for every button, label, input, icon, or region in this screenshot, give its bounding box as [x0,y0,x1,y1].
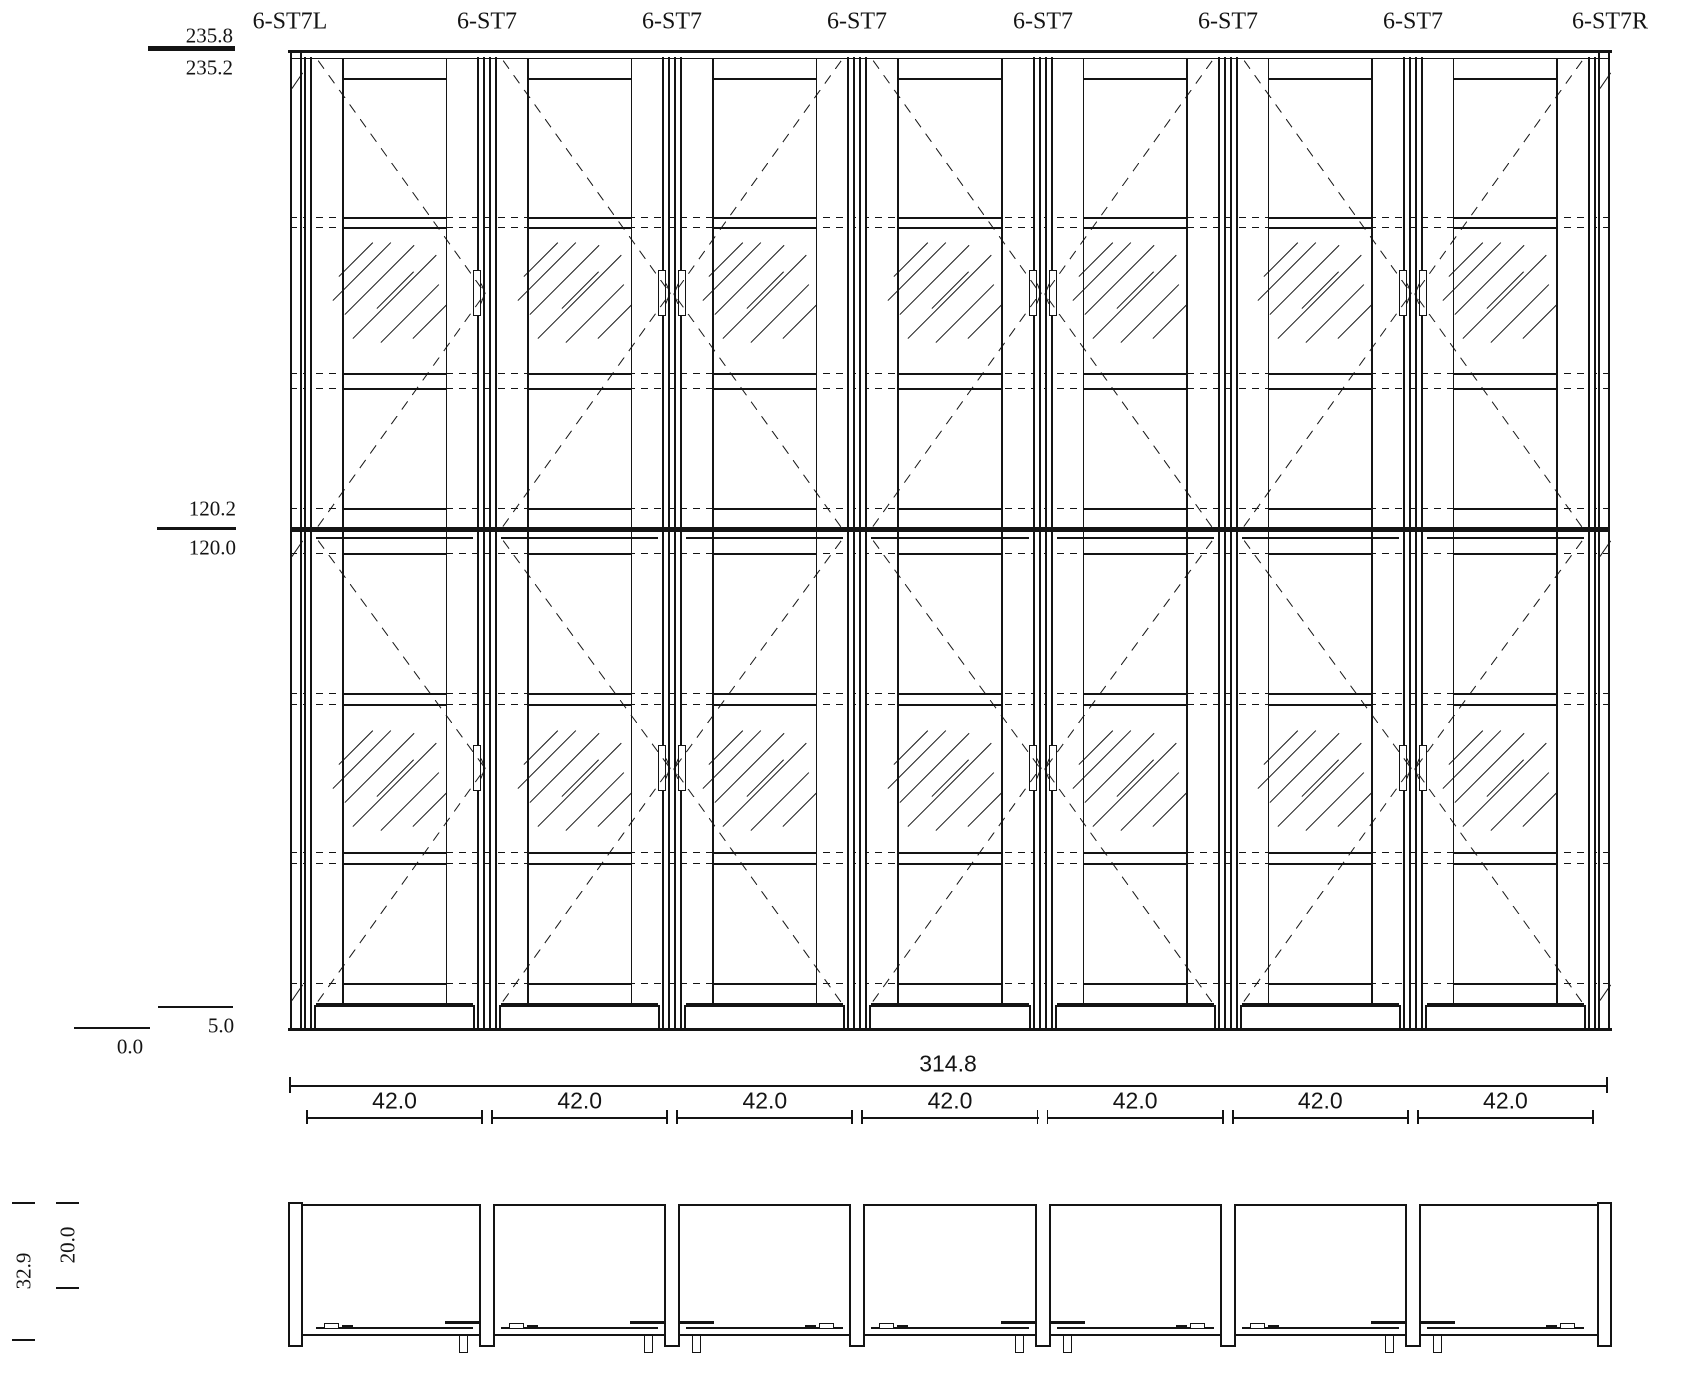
top-rail-line [342,78,447,80]
plinth [314,1005,475,1029]
bay-width-dimension: 42.0 [1113,1088,1158,1115]
dimension-line-bay [491,1117,668,1119]
door-top-edge [501,537,658,539]
shelf-line [1268,227,1373,229]
plan-end-cap-left [288,1202,303,1347]
plan-handle-bar [1371,1321,1407,1324]
shelf-line [1268,704,1373,706]
shelf-line [527,227,632,229]
dimension-line-bay [676,1117,853,1119]
glass-hatch-stroke [597,792,632,827]
dimension-tick [1417,1110,1419,1124]
shelf-line [1083,983,1188,985]
glass-hatch-stroke [565,772,624,831]
dimension-line-bay [1232,1117,1409,1119]
elevation-top-edge [288,50,1612,53]
shelf-line [712,852,817,854]
shelf-line [1453,704,1558,706]
plan-handle-tab [1433,1336,1442,1353]
plan-door-line [501,1327,658,1329]
door-top-edge [871,537,1028,539]
top-rail-line [1268,78,1373,80]
dimension-tick [676,1110,678,1124]
shelf-line [1268,852,1373,854]
plan-door-line [871,1327,1028,1329]
bay-width-dimension: 42.0 [557,1088,602,1115]
level-label-plinth: 5.0 [208,1014,234,1039]
depth-tick [12,1202,35,1204]
dimension-tick [1606,1077,1608,1093]
dimension-tick [306,1110,308,1124]
shelf-line [1453,863,1558,865]
glass-hatch-stroke [968,304,1003,339]
plan-handle-bar [1001,1321,1037,1324]
shelf-line [527,863,632,865]
unit-label: 6-ST7R [1572,9,1648,36]
stile-right [1588,57,1596,1029]
shelf-line [1268,373,1373,375]
glass-hatch-stroke [380,772,439,831]
hinge-symbol-dash [897,1325,908,1327]
level-mark-235 [148,46,235,51]
shelf-line [897,553,1002,555]
plan-divider [1035,1204,1051,1347]
body-depth-dimension: 20.0 [56,1227,81,1264]
shelf-line [342,227,447,229]
glass-hatch-stroke [412,304,447,339]
hinge-symbol [324,1323,339,1329]
dimension-tick [1222,1110,1224,1124]
dimension-tick [1592,1110,1594,1124]
dimension-tick [851,1110,853,1124]
depth-tick [12,1339,35,1341]
level-mark-0 [74,1027,150,1029]
shelf-line [1083,373,1188,375]
shelf-line [897,704,1002,706]
overall-depth-dimension: 32.9 [12,1253,37,1290]
plan-handle-tab [459,1336,468,1353]
unit-label: 6-ST7 [1383,9,1443,36]
shelf-line [1083,227,1188,229]
plinth [869,1005,1030,1029]
dimension-tick [491,1110,493,1124]
door-top-edge [1427,537,1584,539]
plan-handle-tab [1015,1336,1024,1353]
stile-right [662,57,670,1029]
shelf-line [527,373,632,375]
glass-hatch-stroke [1338,304,1373,339]
plan-divider [1405,1204,1421,1347]
hinge-symbol-dash [527,1325,538,1327]
technical-drawing-canvas: 235.8 235.2 120.2 120.0 5.0 0.0 314.8 32… [0,0,1689,1375]
dimension-tick [1232,1110,1234,1124]
plan-divider [849,1204,865,1347]
plan-divider [1220,1204,1236,1347]
top-rail-line [1453,78,1558,80]
glass-hatch-stroke [332,730,391,789]
glass-hatch-stroke [597,304,632,339]
shelf-line [1453,508,1558,510]
unit-label: 6-ST7 [642,9,702,36]
hinge-symbol-dash [342,1325,353,1327]
shelf-line [712,227,817,229]
stile-left [1415,57,1423,1029]
plinth [1240,1005,1401,1029]
plan-door-line [316,1327,473,1329]
plan-handle-bar [1419,1321,1455,1324]
plan-handle-bar [630,1321,666,1324]
stile-left [674,57,682,1029]
glass-hatch-stroke [782,304,817,339]
plan-handle-tab [1063,1336,1072,1353]
glass-hatch-stroke [750,284,809,343]
stile-right [1218,57,1226,1029]
dimension-tick [861,1110,863,1124]
stile-left [1045,57,1053,1029]
shelf-line [527,508,632,510]
dimension-tick [1407,1110,1409,1124]
plan-end-cap-right [1597,1202,1612,1347]
glass-hatch-stroke [1523,304,1558,339]
shelf-line [897,983,1002,985]
shelf-line [527,553,632,555]
hinge-symbol-dash [1268,1325,1279,1327]
bay-width-dimension: 42.0 [928,1088,973,1115]
hinge-symbol [509,1323,524,1329]
shelf-line [527,704,632,706]
glass-hatch-stroke [1338,792,1373,827]
glass-hatch-stroke [380,284,439,343]
shelf-line [897,373,1002,375]
hinge-symbol [879,1323,894,1329]
top-rail-line [527,78,632,80]
unit-label: 6-ST7 [457,9,517,36]
dimension-line-bay [306,1117,483,1119]
dimension-tick [289,1077,291,1093]
shelf-line [1083,852,1188,854]
level-label-235-8: 235.8 [186,24,233,49]
shelf-line [1268,388,1373,390]
top-rail-line [1083,78,1188,80]
stile-right [1033,57,1041,1029]
stile-right [847,57,855,1029]
shelf-line [342,373,447,375]
glass-hatch-stroke [1121,772,1180,831]
plan-divider [664,1204,680,1347]
shelf-line [1453,983,1558,985]
shelf-line [1453,553,1558,555]
glass-hatch-stroke [332,242,391,301]
stile-left [304,57,312,1029]
shelf-line [897,227,1002,229]
door-top-edge [316,537,473,539]
shelf-line [897,508,1002,510]
dimension-line-bay [1047,1117,1224,1119]
plan-handle-tab [1385,1336,1394,1353]
depth-tick [56,1202,79,1204]
glass-hatch-stroke [1153,792,1188,827]
shelf-line [1453,388,1558,390]
glass-hatch-stroke [565,284,624,343]
bay-width-dimension: 42.0 [372,1088,417,1115]
plan-handle-tab [644,1336,653,1353]
plan-handle-tab [692,1336,701,1353]
shelf-line [1268,983,1373,985]
unit-label: 6-ST7 [1013,9,1073,36]
shelf-line [527,983,632,985]
hinge-symbol-dash [1176,1325,1187,1327]
door-top-edge [1242,537,1399,539]
dimension-tick [1037,1110,1039,1124]
dimension-tick [481,1110,483,1124]
elevation-top-inner [290,58,1610,59]
shelf-line [1083,508,1188,510]
top-rail-line [897,78,1002,80]
plan-handle-bar [445,1321,481,1324]
shelf-line [527,852,632,854]
shelf-line [712,863,817,865]
elevation-bottom-edge [288,1028,1612,1031]
shelf-line [342,508,447,510]
shelf-line [342,388,447,390]
unit-label: 6-ST7 [1198,9,1258,36]
bay-width-dimension: 42.0 [1298,1088,1343,1115]
level-label-235-2: 235.2 [186,56,233,81]
glass-hatch-stroke [1153,304,1188,339]
stile-left [1230,57,1238,1029]
shelf-line [1453,373,1558,375]
shelf-line [1268,553,1373,555]
glass-hatch-stroke [1121,284,1180,343]
shelf-line [712,388,817,390]
stile-right [477,57,485,1029]
glass-hatch-stroke [1523,792,1558,827]
level-mark-120 [157,527,236,530]
dimension-line-total [290,1085,1607,1087]
glass-hatch-stroke [936,284,995,343]
shelf-line [342,863,447,865]
shelf-line [1268,863,1373,865]
level-label-floor: 0.0 [117,1035,143,1060]
end-panel-left [290,50,302,1029]
shelf-line [1083,388,1188,390]
shelf-line [1083,704,1188,706]
glass-hatch-stroke [750,772,809,831]
shelf-line [1268,508,1373,510]
shelf-line [1083,553,1188,555]
end-panel-right [1598,50,1610,1029]
hinge-symbol [819,1323,834,1329]
depth-tick [56,1287,79,1289]
plan-handle-bar [1049,1321,1085,1324]
level-label-120-0: 120.0 [189,536,236,561]
plinth [1425,1005,1586,1029]
plinth [1055,1005,1216,1029]
glass-hatch-stroke [936,772,995,831]
shelf-line [712,508,817,510]
glass-hatch-stroke [412,792,447,827]
glass-hatch-stroke [782,792,817,827]
shelf-line [342,704,447,706]
shelf-line [712,373,817,375]
stile-left [489,57,497,1029]
plinth [684,1005,845,1029]
bay-width-dimension: 42.0 [1483,1088,1528,1115]
hinge-symbol [1560,1323,1575,1329]
shelf-line [1083,863,1188,865]
unit-label: 6-ST7L [253,9,328,36]
hinge-symbol [1190,1323,1205,1329]
door-top-edge [1057,537,1214,539]
hinge-symbol-dash [805,1325,816,1327]
stile-right [1403,57,1411,1029]
glass-hatch-stroke [1306,284,1365,343]
plan-door-line [1242,1327,1399,1329]
unit-label: 6-ST7 [827,9,887,36]
shelf-line [342,553,447,555]
level-mark-5 [158,1006,233,1008]
shelf-line [712,553,817,555]
bay-width-dimension: 42.0 [742,1088,787,1115]
glass-hatch-stroke [968,792,1003,827]
stile-left [859,57,867,1029]
dimension-tick [1047,1110,1049,1124]
overall-width-dimension: 314.8 [919,1051,977,1078]
plan-divider [479,1204,495,1347]
mid-junction-line [290,527,1610,532]
shelf-line [712,983,817,985]
shelf-line [1453,852,1558,854]
top-rail-line [712,78,817,80]
shelf-line [527,388,632,390]
dimension-tick [666,1110,668,1124]
hinge-symbol-dash [1546,1325,1557,1327]
dimension-line-bay [1417,1117,1594,1119]
shelf-line [897,852,1002,854]
hinge-symbol [1250,1323,1265,1329]
shelf-line [342,983,447,985]
plan-handle-bar [678,1321,714,1324]
level-label-120-2: 120.2 [189,497,236,522]
shelf-line [897,863,1002,865]
shelf-line [897,388,1002,390]
shelf-line [712,704,817,706]
glass-hatch-stroke [1306,772,1365,831]
plinth [499,1005,660,1029]
dimension-line-bay [861,1117,1038,1119]
shelf-line [1453,227,1558,229]
door-top-edge [686,537,843,539]
shelf-line [342,852,447,854]
